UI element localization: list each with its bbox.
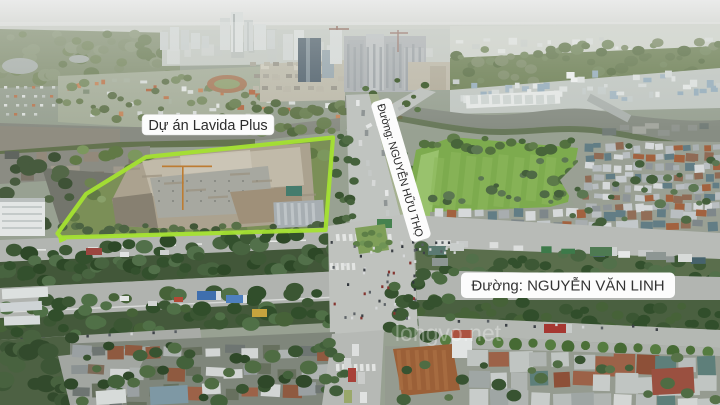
svg-text:Đường: NGUYỄN VĂN LINH: Đường: NGUYỄN VĂN LINH — [471, 278, 664, 295]
svg-text:Dự án Lavida Plus: Dự án Lavida Plus — [148, 118, 267, 134]
svg-text:longvo.net: longvo.net — [395, 320, 502, 346]
